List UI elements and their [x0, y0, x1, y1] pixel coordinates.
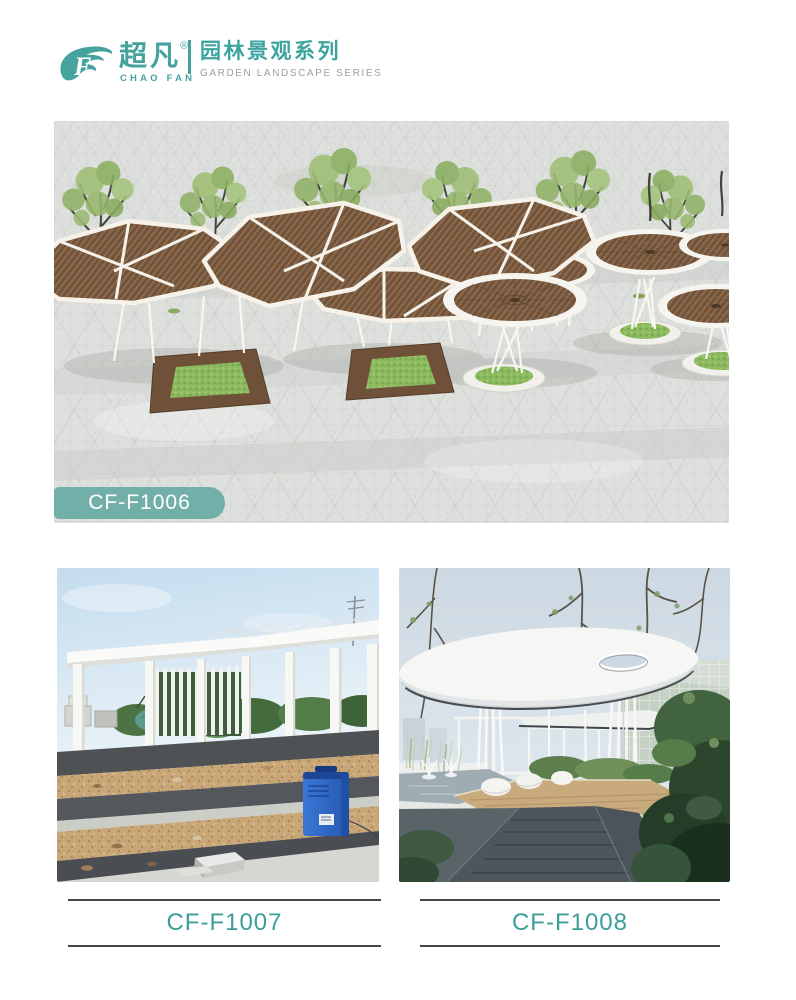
- product-code-label: CF-F1007: [166, 909, 282, 937]
- product-image-cf-f1006: CF-F1006: [54, 121, 729, 523]
- header-divider: [188, 40, 191, 74]
- catalog-page: F 超凡 ® CHAO FAN 园林景观系列 GARDEN LANDSCAPE …: [0, 0, 796, 1000]
- brand-name-cn: 超凡: [119, 42, 181, 70]
- series-title-cn: 园林景观系列: [200, 41, 341, 62]
- product-image-cf-f1008: [399, 568, 730, 882]
- registered-trademark: ®: [180, 40, 188, 52]
- caption-cf-f1007: CF-F1007: [68, 899, 381, 947]
- caption-cf-f1008: CF-F1008: [420, 899, 720, 947]
- svg-text:F: F: [73, 52, 91, 81]
- product-code-badge: CF-F1006: [54, 487, 225, 519]
- rect-planter: [150, 349, 270, 413]
- rect-planter: [346, 343, 454, 400]
- round-planter: [463, 364, 545, 392]
- canopy-pavilion-photo-illustration: [399, 568, 730, 882]
- product-image-cf-f1007: [57, 568, 379, 882]
- product-code-label: CF-F1008: [512, 909, 628, 937]
- chaofan-logo-icon: F: [54, 42, 118, 88]
- round-planter: [609, 321, 681, 345]
- plaza-render-illustration: [54, 121, 729, 523]
- pergola-site-photo-illustration: [57, 568, 379, 882]
- series-title-en: GARDEN LANDSCAPE SERIES: [200, 68, 382, 79]
- brand-name-en: CHAO FAN: [120, 73, 195, 84]
